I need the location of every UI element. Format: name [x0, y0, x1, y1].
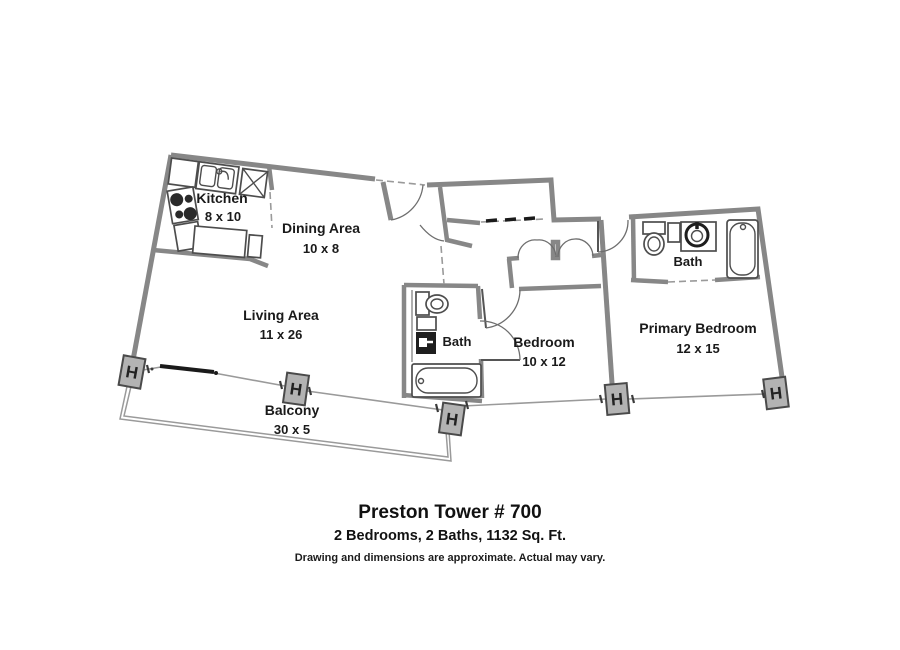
- entry-top-wall: [427, 180, 601, 220]
- closet-track-mark: [524, 218, 535, 219]
- primary-bath-bottom-left: [631, 280, 668, 282]
- window-tick: [280, 381, 282, 389]
- column-symbol: H: [289, 379, 304, 400]
- closet-track-mark: [486, 220, 497, 221]
- column-marker: H: [119, 355, 146, 388]
- kitchen-dims: 8 x 10: [205, 209, 241, 224]
- bath-label: Bath: [443, 334, 472, 349]
- bifold-door-arc: [558, 239, 575, 257]
- entry-door-leaf: [383, 182, 391, 220]
- bifold-door-arc: [518, 240, 537, 258]
- floor-plan-page: H H H H H: [0, 0, 900, 650]
- entry-door-arc: [391, 185, 423, 220]
- primary-bedroom-label: Primary Bedroom: [639, 320, 756, 336]
- bedroom-label: Bedroom: [513, 334, 574, 350]
- column-symbol: H: [610, 389, 624, 409]
- balcony-label: Balcony: [265, 402, 320, 418]
- window-tick: [466, 401, 468, 409]
- bath-cabinet: [417, 317, 436, 330]
- living-window-line: [214, 373, 285, 386]
- dining-area-label: Dining Area: [282, 220, 360, 236]
- primary-bath-left-wall: [633, 216, 634, 281]
- column-symbol: H: [445, 409, 460, 430]
- plan-title: Preston Tower # 700: [358, 502, 541, 523]
- sliding-glass-door: [151, 366, 219, 375]
- column-marker: H: [763, 377, 788, 409]
- window-tick: [147, 365, 149, 373]
- entry-door-arc-2: [420, 225, 444, 241]
- bedroom-dims: 10 x 12: [522, 354, 565, 369]
- kitchen-right-dashed: [270, 192, 272, 228]
- bedroom-primary-divider-wall: [601, 220, 613, 398]
- living-area-label: Living Area: [243, 307, 319, 323]
- hall-closet-stub-wall: [447, 220, 480, 223]
- primary-bath-label: Bath: [674, 254, 703, 269]
- balcony-dims: 30 x 5: [274, 422, 310, 437]
- bath-top-wall: [404, 285, 478, 286]
- toilet-bowl: [426, 295, 448, 313]
- bedroom-closet-left-wall: [509, 259, 512, 288]
- bath-right-wall-upper: [478, 286, 480, 319]
- kitchen-dishwasher: [248, 235, 263, 258]
- window-end-dot: [151, 368, 154, 371]
- bath-sink-basin-glyph: [419, 338, 427, 347]
- bedroom-door-leaf: [482, 289, 486, 328]
- primary-bath-fixtures: [643, 220, 758, 278]
- primary-bath-cabinet: [668, 223, 680, 242]
- left-wall: [131, 155, 171, 371]
- hall-opening-dashed: [441, 246, 444, 284]
- kitchen-right-wall: [269, 166, 272, 190]
- column-marker: H: [283, 373, 309, 406]
- living-area-dims: 11 x 26: [260, 327, 303, 342]
- vestibule-right-wall: [440, 187, 472, 246]
- primary-bedroom-dims: 12 x 15: [676, 341, 719, 356]
- window-tick: [600, 395, 602, 403]
- bedroom-window-line: [463, 399, 606, 406]
- footer: Preston Tower # 700 2 Bedrooms, 2 Baths,…: [295, 502, 606, 564]
- kitchen-table: [193, 226, 247, 257]
- sliding-door-handle: [214, 371, 218, 375]
- plan-disclaimer: Drawing and dimensions are approximate. …: [295, 552, 606, 564]
- bifold-door-arc: [575, 239, 593, 256]
- column-marker: H: [439, 403, 465, 436]
- window-tick: [436, 404, 438, 412]
- floor-plan-svg: H H H H H: [0, 0, 900, 650]
- primary-bedroom-window-line: [629, 394, 766, 399]
- kitchen-label: Kitchen: [196, 190, 247, 206]
- dining-area-dims: 10 x 8: [303, 241, 339, 256]
- bedroom-top-wall: [519, 286, 601, 289]
- sliding-door-panel: [160, 366, 214, 372]
- plan-subtitle: 2 Bedrooms, 2 Baths, 1132 Sq. Ft.: [334, 528, 566, 544]
- column-marker: H: [605, 383, 630, 415]
- bedroom-closet-front-left: [507, 258, 519, 259]
- window-tick: [309, 387, 311, 395]
- window-tick: [632, 395, 634, 403]
- kitchen-counter: [168, 158, 198, 187]
- closet-track-mark: [505, 219, 516, 220]
- primary-bath-opening-dashed: [668, 280, 715, 282]
- column-symbol: H: [769, 383, 784, 403]
